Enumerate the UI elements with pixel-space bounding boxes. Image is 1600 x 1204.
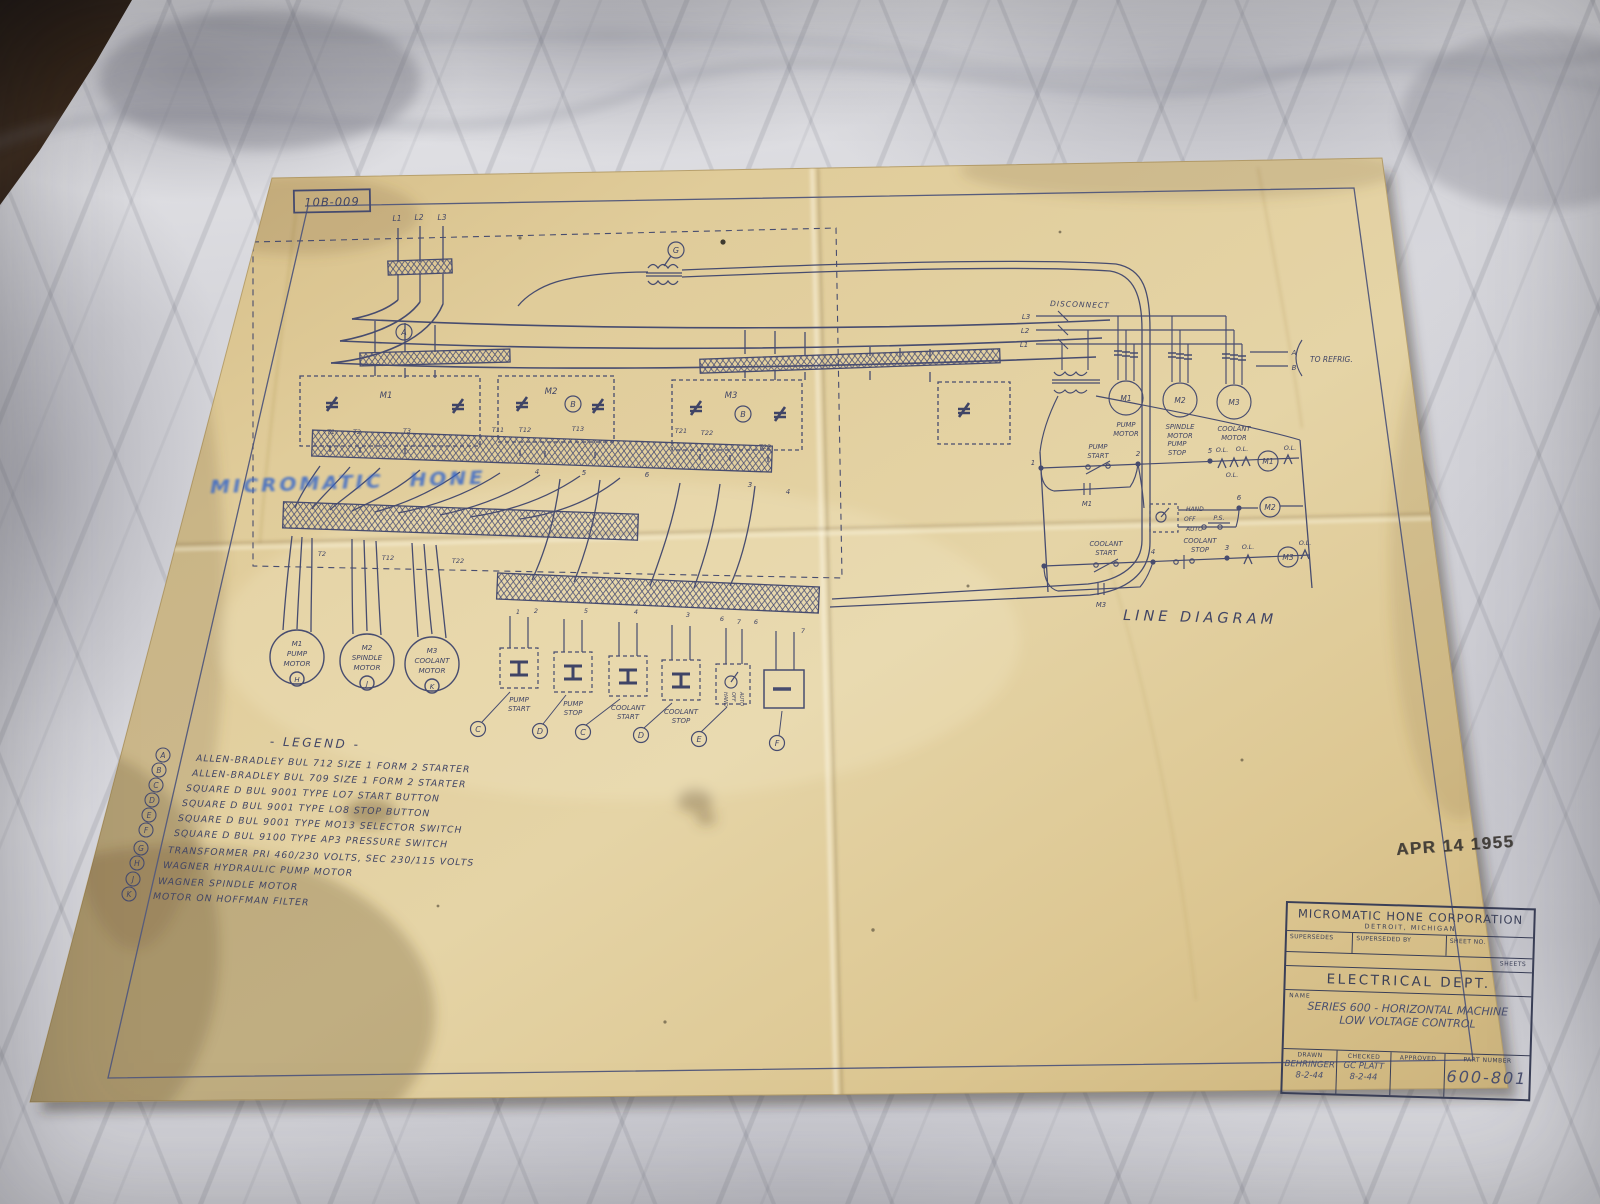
rung-label: PUMP: [1088, 443, 1108, 451]
checked-label: CHECKED: [1348, 1053, 1381, 1061]
legend-key: G: [138, 844, 144, 853]
motor-ref: H: [294, 676, 300, 684]
legend-key: B: [156, 766, 161, 775]
duct-number: 5: [582, 469, 587, 477]
overload-label: O.L.: [1236, 445, 1249, 453]
ld-motor-id: M3: [1228, 398, 1239, 407]
motor-name: PUMP: [287, 649, 308, 658]
button-label: COOLANT: [611, 704, 646, 712]
drawn-cell: DRAWN BEHRINGER 8-2-44: [1282, 1049, 1337, 1094]
overload-label: O.L.: [1299, 539, 1312, 547]
motor-name: MOTOR: [354, 663, 381, 672]
button-label: START: [617, 713, 640, 721]
rung-label: STOP: [1168, 449, 1187, 457]
drawn-name: BEHRINGER: [1284, 1059, 1335, 1070]
motor-id: M3: [427, 646, 438, 655]
selector-position: OFF: [1184, 516, 1196, 523]
motor-name: COOLANT: [414, 656, 450, 665]
selector-position: AUTO: [1185, 526, 1203, 533]
ld-phase: L3: [1022, 313, 1030, 321]
rung-label: START: [1095, 549, 1117, 557]
legend-key: E: [147, 811, 152, 820]
ld-phase: L2: [1021, 327, 1030, 335]
duct-number: 2: [534, 607, 538, 615]
ld-motor-name: MOTOR: [1221, 434, 1247, 442]
starter-ref: B: [570, 400, 576, 409]
ld-motor-name: PUMP: [1116, 421, 1136, 429]
legend-key: A: [159, 751, 165, 760]
button-ref: D: [638, 731, 644, 740]
ld-motor-name: MOTOR: [1167, 432, 1193, 440]
name-label: NAME: [1289, 992, 1311, 1000]
selector-word: OFF: [730, 692, 736, 702]
motor-id: M1: [292, 639, 303, 648]
motor-name: MOTOR: [419, 666, 446, 675]
motor-name: SPINDLE: [352, 653, 383, 662]
phase-label: L1: [393, 214, 402, 223]
wire-label: T23: [759, 443, 771, 451]
button-label: PUMP: [509, 696, 529, 704]
approved-label: APPROVED: [1400, 1054, 1437, 1062]
coil-label: M1: [1262, 457, 1273, 466]
ld-motor-name: COOLANT: [1217, 425, 1251, 433]
coil-label: M2: [1264, 503, 1275, 512]
ld-motor-id: M2: [1174, 396, 1185, 405]
refrig-terminal: A: [1291, 349, 1297, 357]
button-ref: D: [537, 727, 543, 736]
rung-label: COOLANT: [1089, 540, 1123, 548]
wire-label: T3: [403, 427, 411, 435]
motor-id: M2: [362, 643, 373, 652]
duct-number: 6: [645, 471, 650, 479]
duct-number: 3: [748, 481, 752, 489]
motor-name: MOTOR: [284, 659, 311, 668]
ld-phase: L1: [1020, 341, 1028, 349]
title-block-signature-row: DRAWN BEHRINGER 8-2-44 CHECKED GC PLATT …: [1282, 1049, 1529, 1099]
starter-ref: B: [740, 410, 746, 419]
drawn-date: 8-2-44: [1295, 1070, 1323, 1081]
refrig-terminal: B: [1292, 364, 1297, 372]
sheet-no-label: SHEET NO.: [1446, 936, 1533, 959]
rung-label: COOLANT: [1183, 537, 1217, 545]
rung-label: START: [1087, 452, 1109, 460]
seal-contact-label: M1: [1082, 500, 1092, 508]
duct-number: 6: [720, 615, 724, 623]
overload-label: O.L.: [1226, 471, 1239, 479]
wire-label: T11: [492, 426, 504, 434]
transformer-ref: G: [673, 246, 679, 255]
button-label: STOP: [672, 717, 691, 725]
selector-word: HAND: [722, 692, 728, 707]
overload-label: O.L.: [1216, 446, 1229, 454]
duct-number: 6: [754, 618, 758, 626]
duct-number: 1: [516, 608, 520, 616]
rung-label: PUMP: [1167, 440, 1187, 448]
rung-label: STOP: [1191, 546, 1210, 554]
button-label: PUMP: [563, 700, 583, 708]
drawn-label: DRAWN: [1297, 1051, 1322, 1059]
drawing-number: 10B-009: [304, 194, 360, 209]
node-number: 3: [1225, 544, 1229, 552]
ld-motor-id: M1: [1120, 394, 1131, 403]
pressure-switch-label: P.S.: [1213, 514, 1224, 522]
overload-label: O.L.: [1242, 543, 1255, 551]
title-block: MICROMATIC HONE CORPORATION DETROIT, MIC…: [1280, 901, 1536, 1101]
wire-label: T22: [701, 429, 713, 437]
ld-motor-name: SPINDLE: [1166, 423, 1196, 431]
overload-label: O.L.: [1284, 444, 1297, 452]
wire-label: T1: [327, 428, 335, 436]
wire-label: T13: [572, 425, 584, 433]
seal-contact-label: M3: [1096, 601, 1106, 609]
photo-of-blueprint: 10B-009: [0, 0, 1600, 1204]
ld-motor-name: MOTOR: [1113, 430, 1139, 438]
starter-label: M2: [545, 387, 558, 397]
part-number-cell: PART NUMBER 600-801: [1445, 1054, 1530, 1099]
node-number: 6: [1237, 494, 1242, 502]
phase-label: L3: [438, 213, 447, 222]
to-refrig-label: TO REFRIG.: [1310, 355, 1353, 364]
legend-key: C: [153, 781, 159, 790]
supersedes-label: SUPERSEDES: [1287, 931, 1354, 953]
duct-number: 4: [786, 488, 790, 496]
node-number: 5: [1208, 447, 1213, 455]
duct-number: 5: [584, 607, 588, 615]
superseded-by-label: SUPERSEDED BY: [1353, 933, 1447, 956]
legend-key: H: [134, 859, 140, 868]
checked-date: 8-2-44: [1349, 1072, 1377, 1083]
part-number-value: 600-801: [1446, 1067, 1527, 1088]
wire-label: T21: [675, 427, 687, 435]
node-number: 2: [1136, 450, 1141, 458]
pressure-switch-ref: F: [775, 739, 780, 748]
phase-label: L2: [415, 213, 424, 222]
node-number: 4: [1151, 548, 1155, 556]
starter-ref: A: [400, 328, 406, 337]
coil-label: M3: [1282, 553, 1293, 562]
wire-label: T12: [519, 426, 531, 434]
duct-number: 4: [535, 468, 539, 476]
part-number-label: PART NUMBER: [1463, 1056, 1511, 1064]
wire-label: T22: [452, 557, 464, 565]
wire-label: T12: [382, 554, 394, 562]
button-label: START: [508, 705, 531, 713]
button-label: COOLANT: [664, 708, 699, 716]
checked-name: GC PLATT: [1343, 1061, 1384, 1072]
node-number: 1: [1031, 459, 1035, 467]
duct-number: 4: [634, 608, 638, 616]
wire-label: T2: [318, 550, 326, 558]
button-label: STOP: [564, 709, 583, 717]
legend-key: F: [144, 826, 149, 835]
button-ref: C: [475, 725, 481, 734]
drawing-name-cell: NAME SERIES 600 - HORIZONTAL MACHINE LOW…: [1284, 990, 1532, 1056]
checked-cell: CHECKED GC PLATT 8-2-44: [1336, 1051, 1391, 1096]
selector-word: AUTO: [738, 691, 744, 706]
button-ref: C: [580, 728, 586, 737]
duct-number: 3: [686, 611, 690, 619]
legend-key: D: [149, 796, 155, 805]
starter-label: M1: [380, 391, 393, 401]
selector-position: HAND: [1186, 506, 1204, 513]
wire-label: T2: [353, 428, 361, 436]
approved-cell: APPROVED: [1391, 1052, 1446, 1097]
starter-label: M3: [725, 391, 738, 401]
